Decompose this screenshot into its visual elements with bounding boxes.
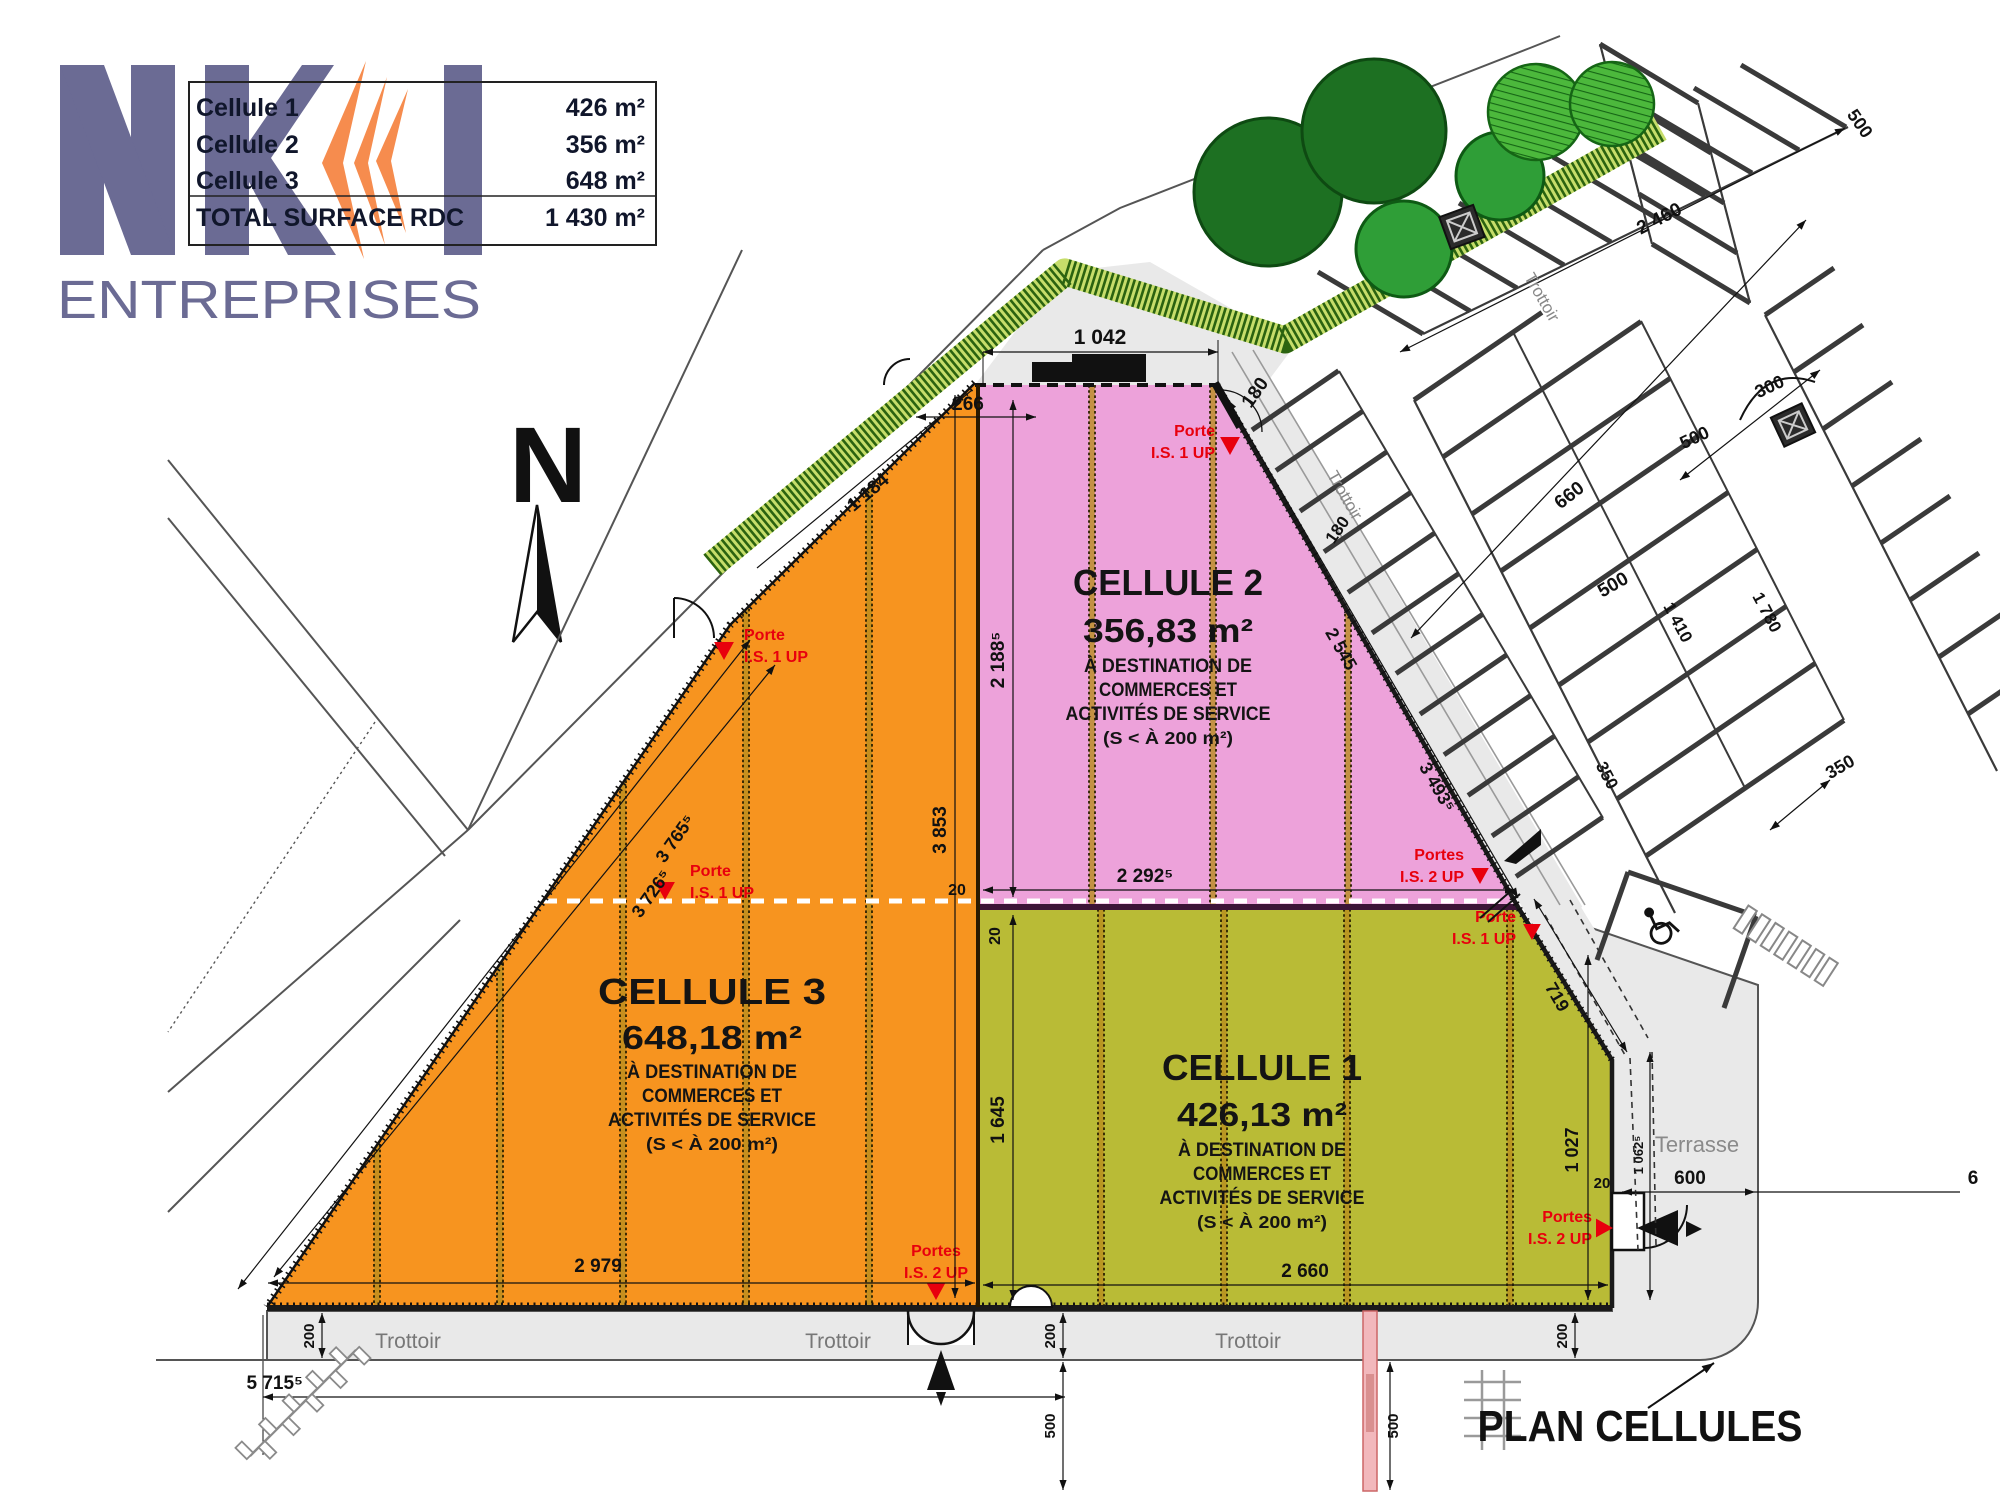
- svg-text:(S < À 200 m²): (S < À 200 m²): [1197, 1211, 1327, 1232]
- svg-text:ENTREPRISES: ENTREPRISES: [57, 270, 481, 330]
- svg-text:200: 200: [301, 1323, 318, 1348]
- svg-text:Portes: Portes: [911, 1243, 961, 1260]
- svg-text:Portes: Portes: [1414, 847, 1464, 864]
- svg-text:COMMERCES ET: COMMERCES ET: [642, 1086, 782, 1107]
- svg-text:648 m²: 648 m²: [566, 167, 645, 195]
- svg-text:TOTAL SURFACE RDC: TOTAL SURFACE RDC: [196, 204, 464, 232]
- svg-text:200: 200: [1042, 1323, 1059, 1348]
- svg-text:Trottoir: Trottoir: [805, 1330, 871, 1353]
- svg-text:200: 200: [1554, 1323, 1571, 1348]
- svg-text:Trottoir: Trottoir: [1215, 1330, 1281, 1353]
- svg-text:1 062⁵: 1 062⁵: [1631, 1136, 1646, 1175]
- svg-text:356 m²: 356 m²: [566, 131, 645, 159]
- svg-text:356,83 m²: 356,83 m²: [1083, 612, 1253, 649]
- svg-text:CELLULE 3: CELLULE 3: [598, 971, 826, 1012]
- svg-text:ACTIVITÉS DE SERVICE: ACTIVITÉS DE SERVICE: [1066, 703, 1271, 725]
- svg-text:I.S. 2 UP: I.S. 2 UP: [1400, 869, 1464, 886]
- svg-text:PLAN CELLULES: PLAN CELLULES: [1478, 1402, 1803, 1451]
- svg-text:2 292⁵: 2 292⁵: [1117, 866, 1173, 887]
- svg-text:Cellule 1: Cellule 1: [196, 94, 299, 122]
- svg-text:1 430 m²: 1 430 m²: [545, 204, 645, 232]
- svg-text:Trottoir: Trottoir: [375, 1330, 441, 1353]
- svg-text:Portes: Portes: [1542, 1209, 1592, 1226]
- svg-text:426 m²: 426 m²: [566, 94, 645, 122]
- svg-text:500: 500: [1042, 1413, 1059, 1438]
- svg-text:I.S. 1 UP: I.S. 1 UP: [744, 649, 808, 666]
- svg-text:I.S. 1 UP: I.S. 1 UP: [1151, 445, 1215, 462]
- svg-text:1 645: 1 645: [988, 1096, 1009, 1144]
- svg-text:I.S. 1 UP: I.S. 1 UP: [1452, 931, 1516, 948]
- svg-text:Porte: Porte: [1174, 423, 1215, 440]
- svg-text:Porte: Porte: [744, 627, 785, 644]
- svg-text:N: N: [509, 404, 587, 525]
- svg-text:3 853: 3 853: [930, 806, 951, 854]
- svg-text:426,13 m²: 426,13 m²: [1177, 1096, 1347, 1133]
- svg-text:(S < À 200 m²): (S < À 200 m²): [646, 1133, 778, 1154]
- svg-text:COMMERCES ET: COMMERCES ET: [1193, 1164, 1331, 1185]
- svg-text:CELLULE 1: CELLULE 1: [1162, 1047, 1362, 1088]
- svg-text:I.S. 1 UP: I.S. 1 UP: [690, 885, 754, 902]
- svg-text:À DESTINATION DE: À DESTINATION DE: [1084, 655, 1252, 677]
- svg-text:20: 20: [948, 882, 966, 899]
- svg-text:Cellule 3: Cellule 3: [196, 167, 299, 195]
- svg-text:CELLULE 2: CELLULE 2: [1073, 562, 1263, 603]
- svg-text:ACTIVITÉS DE SERVICE: ACTIVITÉS DE SERVICE: [1160, 1187, 1365, 1209]
- svg-text:20: 20: [1594, 1175, 1611, 1192]
- svg-text:À DESTINATION DE: À DESTINATION DE: [627, 1061, 797, 1083]
- svg-text:2 979: 2 979: [574, 1256, 622, 1277]
- svg-text:5 715⁵: 5 715⁵: [247, 1373, 303, 1394]
- svg-text:2 660: 2 660: [1281, 1261, 1329, 1282]
- svg-text:Cellule 2: Cellule 2: [196, 131, 299, 159]
- svg-text:COMMERCES ET: COMMERCES ET: [1099, 680, 1237, 701]
- svg-text:I.S. 2 UP: I.S. 2 UP: [904, 1265, 968, 1282]
- svg-text:20: 20: [987, 927, 1004, 945]
- svg-text:À DESTINATION DE: À DESTINATION DE: [1178, 1139, 1346, 1161]
- svg-text:2 188⁵: 2 188⁵: [988, 632, 1009, 688]
- svg-text:Terrasse: Terrasse: [1655, 1132, 1739, 1157]
- svg-text:I.S. 2 UP: I.S. 2 UP: [1528, 1231, 1592, 1248]
- svg-text:Porte: Porte: [690, 863, 731, 880]
- svg-text:500: 500: [1385, 1413, 1402, 1438]
- svg-text:6: 6: [1968, 1168, 1979, 1189]
- svg-text:648,18 m²: 648,18 m²: [622, 1019, 802, 1056]
- svg-text:1 027: 1 027: [1562, 1127, 1582, 1172]
- svg-text:(S < À 200 m²): (S < À 200 m²): [1103, 727, 1233, 748]
- svg-text:1 042: 1 042: [1074, 326, 1127, 349]
- svg-text:600: 600: [1674, 1168, 1706, 1189]
- svg-text:ACTIVITÉS DE SERVICE: ACTIVITÉS DE SERVICE: [608, 1109, 816, 1131]
